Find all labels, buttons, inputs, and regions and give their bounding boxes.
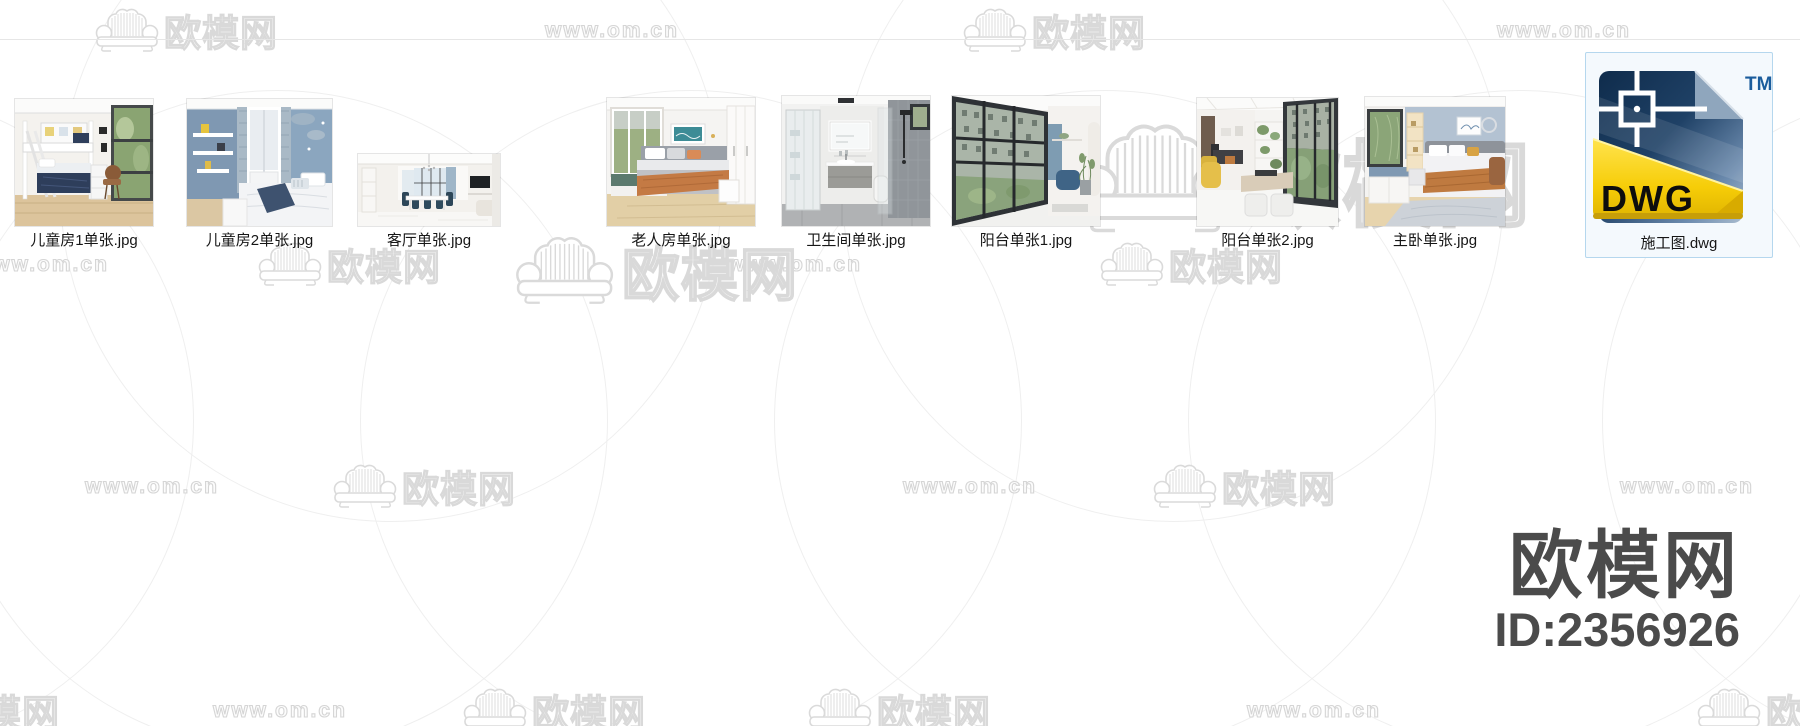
file-item-elder-room[interactable]: 老人房单张.jpg — [607, 98, 755, 250]
bathroom-photo — [782, 96, 930, 226]
elder-room-thumbnail[interactable] — [607, 98, 755, 226]
file-item-kids-room-2[interactable]: 儿童房2单张.jpg — [187, 99, 332, 250]
brand-id: ID:2356926 — [1494, 603, 1740, 657]
balcony-1-photo — [952, 96, 1100, 226]
kids-room-1-thumbnail[interactable] — [15, 99, 153, 226]
master-bedroom-photo — [1365, 97, 1505, 226]
dwg-label: DWG — [1601, 178, 1695, 219]
file-explorer-canvas: 欧模网www.om.cn欧模网www.om.cnwww.om.cn欧模网www.… — [0, 0, 1800, 726]
file-name: 儿童房2单张.jpg — [206, 232, 314, 250]
file-name: 客厅单张.jpg — [387, 232, 471, 250]
brand-watermark: 欧模网 ID:2356926 — [1494, 528, 1740, 658]
file-name: 施工图.dwg — [1641, 235, 1718, 253]
brand-name: 欧模网 — [1494, 528, 1740, 603]
balcony-2-photo — [1197, 98, 1338, 226]
dwg-file-icon[interactable]: DWG TM — [1585, 63, 1773, 233]
file-item-dwg-selected[interactable]: DWG TM 施工图.dwg — [1585, 52, 1773, 258]
kids-room-1-photo — [15, 99, 153, 226]
file-item-bathroom[interactable]: 卫生间单张.jpg — [782, 96, 930, 250]
file-item-living-room[interactable]: 客厅单张.jpg — [358, 154, 500, 250]
file-name: 阳台单张1.jpg — [980, 232, 1073, 250]
file-name: 儿童房1单张.jpg — [30, 232, 138, 250]
kids-room-2-photo — [187, 99, 332, 226]
file-name: 主卧单张.jpg — [1393, 232, 1477, 250]
file-item-kids-room-1[interactable]: 儿童房1单张.jpg — [15, 99, 153, 250]
file-item-master-bedroom[interactable]: 主卧单张.jpg — [1365, 97, 1505, 250]
file-name: 卫生间单张.jpg — [806, 232, 905, 250]
master-bedroom-thumbnail[interactable] — [1365, 97, 1505, 226]
balcony-2-thumbnail[interactable] — [1197, 98, 1338, 226]
elder-room-photo — [607, 98, 755, 226]
living-room-photo — [358, 154, 500, 226]
file-item-balcony-1[interactable]: 阳台单张1.jpg — [952, 96, 1100, 250]
balcony-1-thumbnail[interactable] — [952, 96, 1100, 226]
kids-room-2-thumbnail[interactable] — [187, 99, 332, 226]
living-room-thumbnail[interactable] — [358, 154, 500, 226]
file-name: 阳台单张2.jpg — [1221, 232, 1314, 250]
file-name: 老人房单张.jpg — [631, 232, 730, 250]
trademark-label: TM — [1745, 74, 1772, 95]
file-item-balcony-2[interactable]: 阳台单张2.jpg — [1197, 98, 1338, 250]
autocad-dwg-icon: DWG TM — [1585, 63, 1773, 235]
bathroom-thumbnail[interactable] — [782, 96, 930, 226]
